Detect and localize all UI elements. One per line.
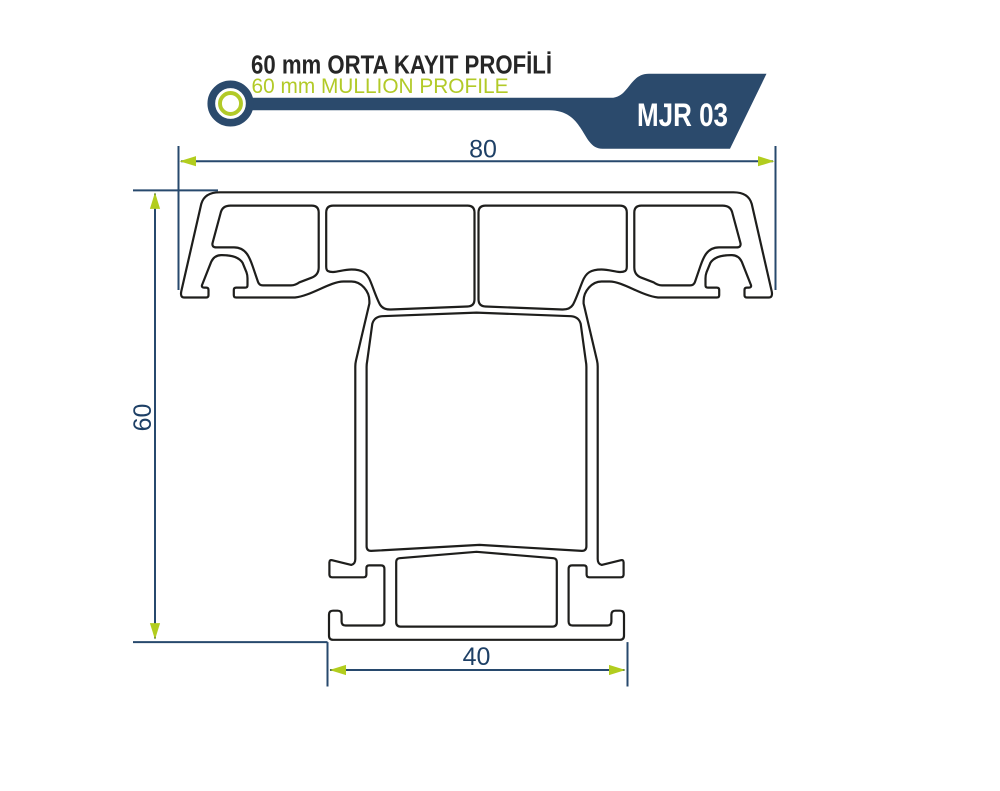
svg-text:40: 40 [463, 643, 491, 671]
svg-text:80: 80 [469, 135, 497, 163]
svg-text:MJR 03: MJR 03 [637, 97, 728, 133]
svg-text:60: 60 [129, 404, 157, 432]
svg-text:60 mm MULLION PROFILE: 60 mm MULLION PROFILE [252, 75, 509, 98]
